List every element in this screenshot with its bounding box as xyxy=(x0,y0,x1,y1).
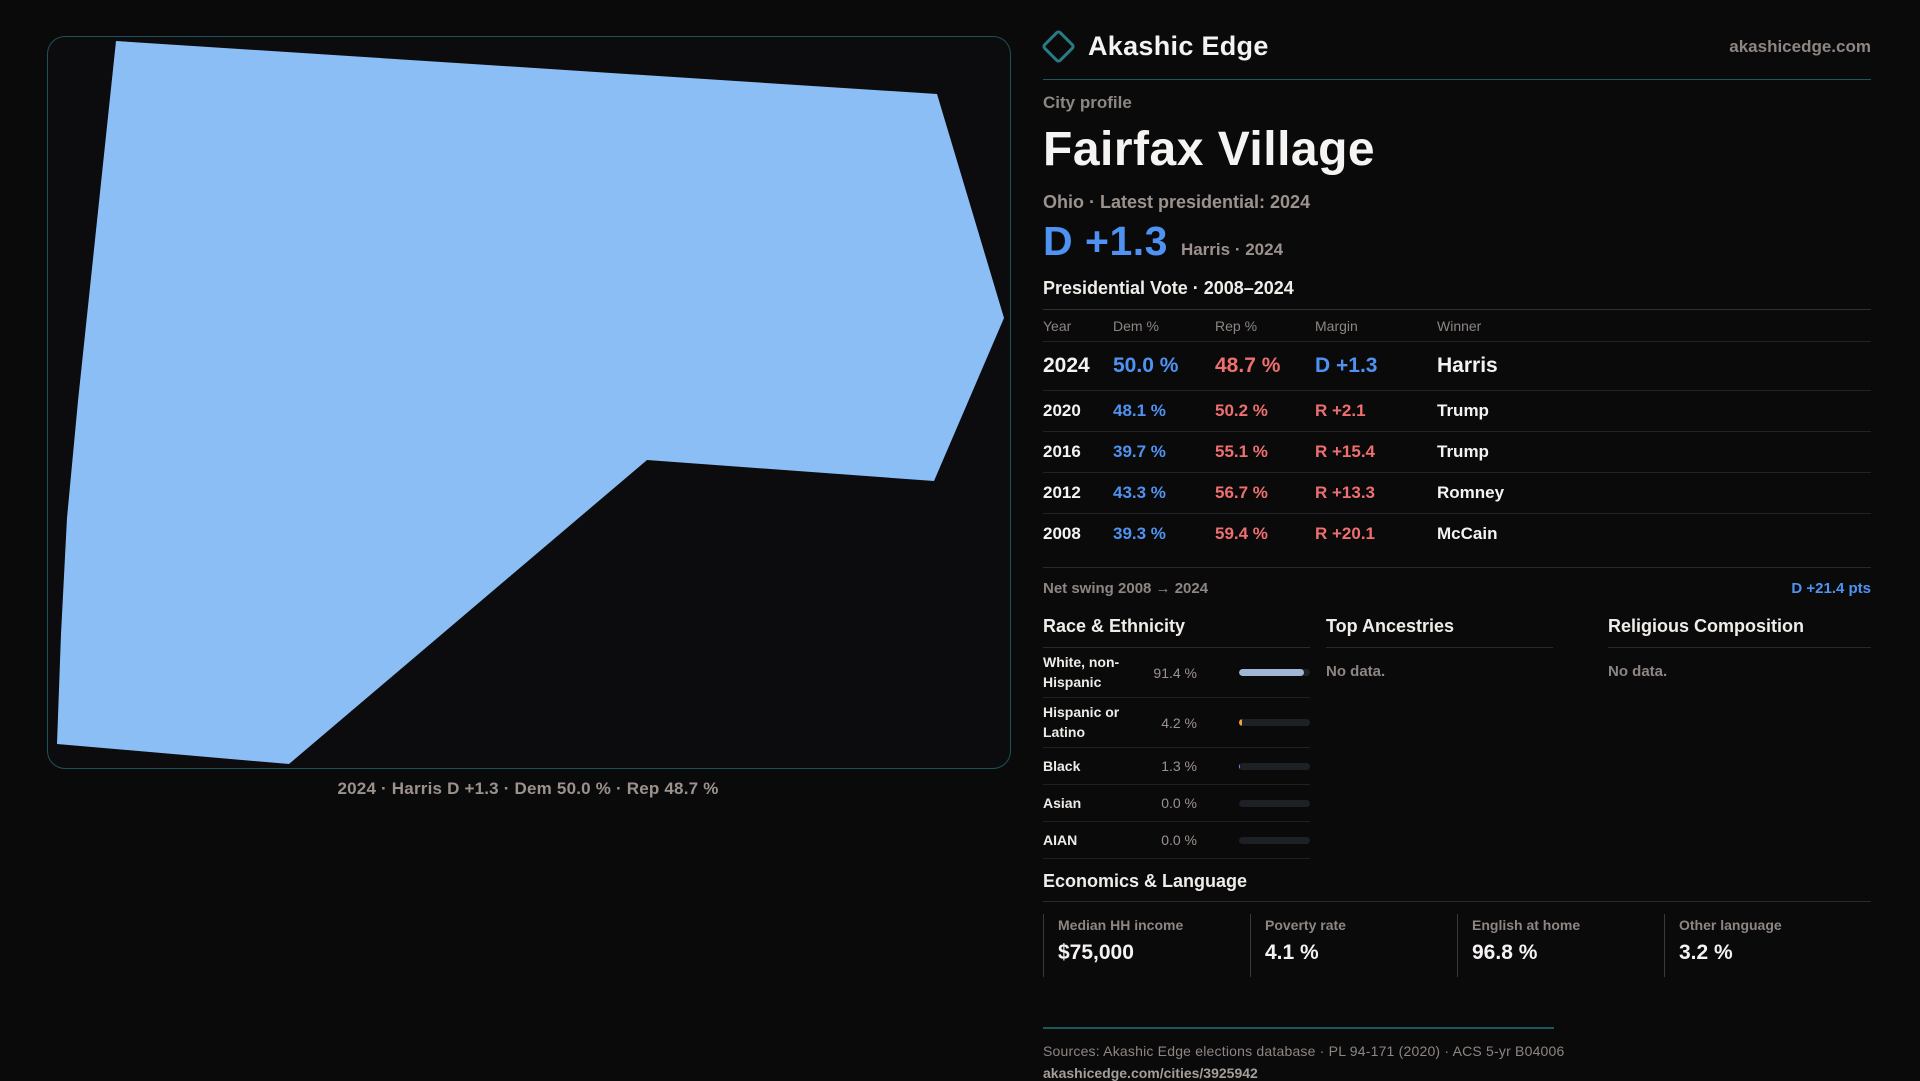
stat-value: 3.2 % xyxy=(1679,941,1861,965)
stat-label: English at home xyxy=(1472,917,1654,933)
col-year: Year xyxy=(1043,310,1113,342)
rep-cell: 56.7 % xyxy=(1215,473,1315,514)
margin-cell: R +20.1 xyxy=(1315,514,1437,555)
dem-cell: 39.7 % xyxy=(1113,432,1215,473)
vote-table: Year Dem % Rep % Margin Winner 2024 50.0… xyxy=(1043,309,1871,554)
lead-margin: D +1.3 xyxy=(1043,221,1168,262)
net-swing-value: D +21.4 pts xyxy=(1791,580,1871,597)
col-margin: Margin xyxy=(1315,310,1437,342)
race-value: 0.0 % xyxy=(1161,832,1197,848)
race-value: 4.2 % xyxy=(1161,715,1197,731)
race-row: AIAN 0.0 % xyxy=(1043,822,1310,859)
vote-table-title: Presidential Vote · 2008–2024 xyxy=(1043,278,1871,299)
col-winner: Winner xyxy=(1437,310,1871,342)
stat-value: 96.8 % xyxy=(1472,941,1654,965)
religion-section: Religious Composition No data. xyxy=(1608,616,1871,859)
vote-row-2020: 2020 48.1 % 50.2 % R +2.1 Trump xyxy=(1043,391,1871,432)
stat-label: Other language xyxy=(1679,917,1861,933)
race-row: Hispanic or Latino 4.2 % xyxy=(1043,698,1310,748)
race-row: Black 1.3 % xyxy=(1043,748,1310,785)
economics-cards: Median HH income $75,000 Poverty rate 4.… xyxy=(1043,914,1871,977)
race-label: Hispanic or Latino xyxy=(1043,703,1147,742)
margin-cell: R +15.4 xyxy=(1315,432,1437,473)
margin-cell: R +13.3 xyxy=(1315,473,1437,514)
race-bar-track xyxy=(1239,669,1310,676)
dem-cell: 50.0 % xyxy=(1113,342,1215,391)
race-bar-track xyxy=(1239,800,1310,807)
net-swing-label: Net swing 2008 → 2024 xyxy=(1043,580,1208,597)
vote-row-2024: 2024 50.0 % 48.7 % D +1.3 Harris xyxy=(1043,342,1871,391)
subtitle: Ohio · Latest presidential: 2024 xyxy=(1043,192,1871,213)
top-ancestries-section: Top Ancestries No data. xyxy=(1326,616,1553,859)
kicker: City profile xyxy=(1043,93,1871,113)
year-cell: 2012 xyxy=(1043,473,1113,514)
col-dem: Dem % xyxy=(1113,310,1215,342)
vote-row-2012: 2012 43.3 % 56.7 % R +13.3 Romney xyxy=(1043,473,1871,514)
year-cell: 2024 xyxy=(1043,342,1113,391)
margin-cell: D +1.3 xyxy=(1315,342,1437,391)
map-caption: 2024 · Harris D +1.3 · Dem 50.0 % · Rep … xyxy=(47,779,1009,799)
race-bar-track xyxy=(1239,719,1310,726)
vote-row-2016: 2016 39.7 % 55.1 % R +15.4 Trump xyxy=(1043,432,1871,473)
race-bar-fill xyxy=(1239,669,1304,676)
page-title: Fairfax Village xyxy=(1043,123,1871,177)
rep-cell: 59.4 % xyxy=(1215,514,1315,555)
dem-cell: 39.3 % xyxy=(1113,514,1215,555)
brand-name: Akashic Edge xyxy=(1088,31,1269,62)
brand-domain-link[interactable]: akashicedge.com xyxy=(1729,37,1871,57)
stat-card-other-language: Other language 3.2 % xyxy=(1664,914,1871,977)
sources-text: Sources: Akashic Edge elections database… xyxy=(1043,1043,1871,1059)
winner-cell: Trump xyxy=(1437,391,1871,432)
col-rep: Rep % xyxy=(1215,310,1315,342)
race-bar-fill xyxy=(1239,763,1240,770)
demographics-columns: Race & Ethnicity White, non-Hispanic 91.… xyxy=(1043,616,1871,859)
race-label: White, non-Hispanic xyxy=(1043,653,1147,692)
winner-cell: Harris xyxy=(1437,342,1871,391)
vote-table-header: Year Dem % Rep % Margin Winner xyxy=(1043,310,1871,342)
lead-context: Harris · 2024 xyxy=(1181,240,1283,260)
stat-card-poverty-rate: Poverty rate 4.1 % xyxy=(1250,914,1457,977)
rep-cell: 48.7 % xyxy=(1215,342,1315,391)
economics-title: Economics & Language xyxy=(1043,871,1871,902)
stat-value: $75,000 xyxy=(1058,941,1240,965)
race-value: 91.4 % xyxy=(1153,665,1197,681)
race-row: Asian 0.0 % xyxy=(1043,785,1310,822)
profile-panel: Akashic Edge akashicedge.com City profil… xyxy=(1043,0,1871,1081)
stat-label: Poverty rate xyxy=(1265,917,1447,933)
dem-cell: 43.3 % xyxy=(1113,473,1215,514)
race-ethnicity-section: Race & Ethnicity White, non-Hispanic 91.… xyxy=(1043,616,1310,859)
race-value: 1.3 % xyxy=(1161,758,1197,774)
race-value: 0.0 % xyxy=(1161,795,1197,811)
vote-row-2008: 2008 39.3 % 59.4 % R +20.1 McCain xyxy=(1043,514,1871,555)
rep-cell: 50.2 % xyxy=(1215,391,1315,432)
margin-cell: R +2.1 xyxy=(1315,391,1437,432)
race-label: Asian xyxy=(1043,794,1147,814)
stat-value: 4.1 % xyxy=(1265,941,1447,965)
stat-card-english-at-home: English at home 96.8 % xyxy=(1457,914,1664,977)
winner-cell: Romney xyxy=(1437,473,1871,514)
city-boundary-shape xyxy=(57,41,1004,764)
winner-cell: Trump xyxy=(1437,432,1871,473)
race-label: Black xyxy=(1043,757,1147,777)
stat-label: Median HH income xyxy=(1058,917,1240,933)
year-cell: 2016 xyxy=(1043,432,1113,473)
brand-diamond-icon xyxy=(1041,29,1076,64)
race-row: White, non-Hispanic 91.4 % xyxy=(1043,648,1310,698)
city-map-panel xyxy=(47,36,1011,769)
net-swing-row: Net swing 2008 → 2024 D +21.4 pts xyxy=(1043,567,1871,597)
rep-cell: 55.1 % xyxy=(1215,432,1315,473)
stat-card-median-income: Median HH income $75,000 xyxy=(1043,914,1250,977)
ancestries-empty-state: No data. xyxy=(1326,663,1553,680)
permalink[interactable]: akashicedge.com/cities/3925942 xyxy=(1043,1065,1871,1081)
city-map xyxy=(48,37,1010,768)
year-cell: 2020 xyxy=(1043,391,1113,432)
top-ancestries-title: Top Ancestries xyxy=(1326,616,1553,648)
race-bar-track xyxy=(1239,763,1310,770)
religion-empty-state: No data. xyxy=(1608,663,1871,680)
footer: Sources: Akashic Edge elections database… xyxy=(1043,1027,1871,1081)
religion-title: Religious Composition xyxy=(1608,616,1871,648)
race-bar-fill xyxy=(1239,719,1242,726)
race-label: AIAN xyxy=(1043,831,1147,851)
lead-result: D +1.3 Harris · 2024 xyxy=(1043,221,1871,262)
race-bar-track xyxy=(1239,837,1310,844)
site-header: Akashic Edge akashicedge.com xyxy=(1043,0,1871,80)
winner-cell: McCain xyxy=(1437,514,1871,555)
race-ethnicity-title: Race & Ethnicity xyxy=(1043,616,1310,648)
year-cell: 2008 xyxy=(1043,514,1113,555)
footer-divider xyxy=(1043,1027,1554,1029)
dem-cell: 48.1 % xyxy=(1113,391,1215,432)
